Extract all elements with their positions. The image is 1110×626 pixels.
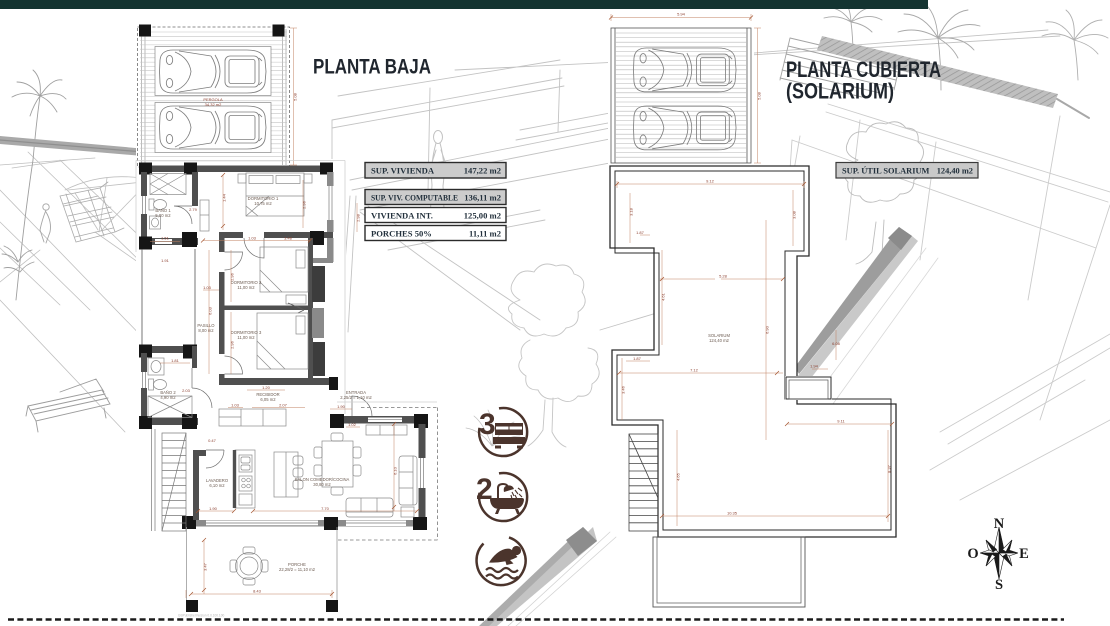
svg-text:1.87: 1.87: [633, 356, 642, 361]
svg-text:1.81: 1.81: [171, 358, 180, 363]
svg-text:4,90 m2: 4,90 m2: [160, 395, 176, 400]
svg-text:6.10: 6.10: [393, 466, 398, 475]
svg-text:1.44: 1.44: [222, 193, 227, 202]
svg-text:1.02: 1.02: [348, 422, 357, 427]
svg-text:8,00 m2: 8,00 m2: [198, 328, 214, 333]
svg-text:5.28: 5.28: [719, 274, 728, 279]
svg-text:136,11 m2: 136,11 m2: [464, 193, 501, 203]
svg-text:6.03: 6.03: [208, 306, 213, 315]
svg-text:6.08: 6.08: [832, 341, 841, 346]
svg-text:4.65: 4.65: [676, 472, 681, 481]
svg-text:10,75 m2: 10,75 m2: [254, 201, 272, 206]
svg-text:2.96: 2.96: [302, 200, 307, 209]
svg-text:1.94: 1.94: [810, 364, 819, 369]
svg-text:1.90: 1.90: [337, 404, 346, 409]
svg-text:34,32 m2: 34,32 m2: [205, 102, 222, 107]
svg-text:11,00 m2: 11,00 m2: [237, 335, 255, 340]
svg-text:SUP. ÚTIL SOLARIUM: SUP. ÚTIL SOLARIUM: [842, 166, 930, 176]
svg-text:S: S: [995, 577, 1003, 593]
svg-text:0.47: 0.47: [208, 438, 217, 443]
svg-text:2.07: 2.07: [279, 403, 288, 408]
svg-text:8.43: 8.43: [253, 589, 262, 594]
svg-text:2.79: 2.79: [189, 207, 198, 212]
svg-text:1.90: 1.90: [209, 506, 218, 511]
svg-text:6.90: 6.90: [765, 325, 770, 334]
svg-text:VIVIENDA INT.: VIVIENDA INT.: [371, 211, 433, 221]
svg-text:1.03: 1.03: [231, 403, 240, 408]
svg-text:1.03: 1.03: [248, 236, 257, 241]
svg-text:(SOLARIUM): (SOLARIUM): [786, 79, 894, 104]
svg-text:9.11: 9.11: [837, 419, 845, 424]
svg-text:N: N: [994, 516, 1005, 532]
svg-text:1.91: 1.91: [161, 258, 170, 263]
svg-text:147,22 m2: 147,22 m2: [464, 166, 501, 176]
svg-text:2,25/2 = 1,10 m2: 2,25/2 = 1,10 m2: [340, 395, 372, 400]
svg-text:4.61: 4.61: [661, 292, 666, 301]
svg-text:10.35: 10.35: [727, 511, 738, 516]
svg-text:22,28/2 = 11,10 m2: 22,28/2 = 11,10 m2: [279, 567, 316, 572]
svg-text:O: O: [967, 546, 978, 562]
svg-text:1.51: 1.51: [161, 236, 170, 241]
svg-text:7.70: 7.70: [321, 506, 330, 511]
svg-text:1.20: 1.20: [262, 385, 271, 390]
svg-text:3: 3: [479, 408, 496, 441]
svg-text:1.03: 1.03: [203, 285, 212, 290]
svg-text:3.46: 3.46: [621, 385, 626, 394]
svg-text:8.37: 8.37: [887, 464, 892, 473]
svg-text:124,40 m2: 124,40 m2: [937, 167, 973, 176]
svg-text:30,80 m2: 30,80 m2: [313, 482, 331, 487]
svg-text:5.94: 5.94: [677, 12, 686, 17]
svg-text:9.12: 9.12: [706, 179, 715, 184]
svg-text:7.12: 7.12: [690, 368, 699, 373]
svg-text:PLANTA BAJA: PLANTA BAJA: [313, 56, 431, 79]
svg-text:GSPublisherVersion 0.0.100.100: GSPublisherVersion 0.0.100.100: [178, 614, 224, 618]
svg-text:125,00 m2: 125,00 m2: [464, 211, 501, 221]
svg-text:2.98: 2.98: [356, 213, 361, 222]
svg-text:3.18: 3.18: [629, 207, 634, 216]
svg-text:124,40 m2: 124,40 m2: [709, 338, 729, 343]
svg-text:3.47: 3.47: [203, 562, 208, 571]
svg-text:6,05 m2: 6,05 m2: [260, 397, 276, 402]
svg-text:3.08: 3.08: [792, 210, 797, 219]
svg-text:SUP. VIV. COMPUTABLE: SUP. VIV. COMPUTABLE: [371, 193, 458, 203]
svg-text:5,00 m2: 5,00 m2: [155, 213, 171, 218]
svg-text:11,00 m2: 11,00 m2: [237, 285, 255, 290]
svg-text:5.08: 5.08: [757, 91, 762, 100]
svg-text:2.03: 2.03: [182, 388, 191, 393]
svg-text:2.96: 2.96: [230, 272, 235, 281]
svg-text:2.96: 2.96: [230, 340, 235, 349]
svg-text:E: E: [1019, 546, 1029, 562]
svg-text:PORCHES 50%: PORCHES 50%: [371, 229, 432, 239]
svg-text:3.48: 3.48: [284, 236, 293, 241]
svg-text:11,11 m2: 11,11 m2: [469, 229, 501, 239]
svg-text:1.87: 1.87: [636, 230, 645, 235]
svg-text:SUP. VIVIENDA: SUP. VIVIENDA: [371, 166, 435, 176]
svg-text:5.08: 5.08: [293, 92, 298, 101]
svg-text:6,10 m2: 6,10 m2: [209, 483, 225, 488]
